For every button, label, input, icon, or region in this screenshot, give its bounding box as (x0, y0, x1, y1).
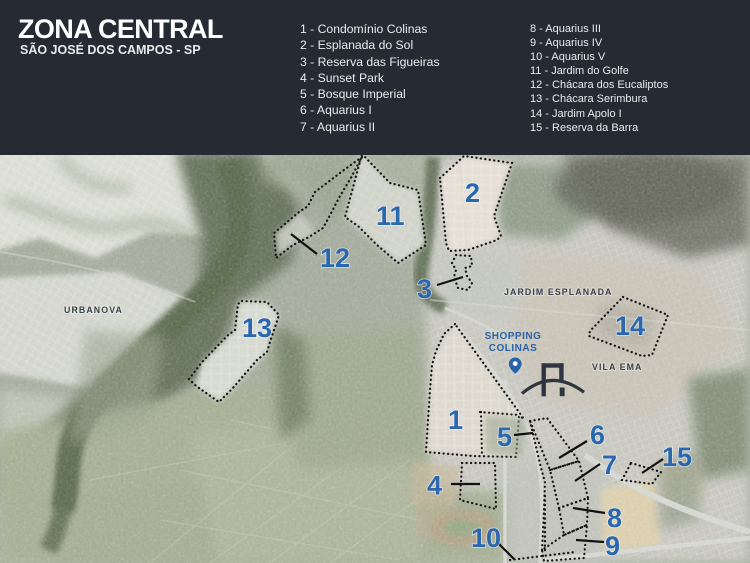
svg-text:4: 4 (427, 471, 442, 501)
svg-text:COLINAS: COLINAS (489, 343, 538, 354)
svg-text:JARDIM ESPLANADA: JARDIM ESPLANADA (504, 287, 613, 297)
svg-text:12: 12 (320, 243, 350, 273)
svg-text:7: 7 (602, 450, 617, 480)
svg-text:15: 15 (662, 442, 692, 472)
svg-text:11: 11 (376, 201, 405, 231)
svg-text:9: 9 (605, 531, 620, 561)
svg-text:2: 2 (465, 178, 480, 208)
svg-text:3: 3 (417, 274, 432, 304)
svg-text:URBANOVA: URBANOVA (64, 305, 123, 315)
svg-text:13: 13 (242, 313, 272, 343)
svg-text:14: 14 (615, 311, 645, 341)
svg-text:SHOPPING: SHOPPING (485, 331, 542, 342)
svg-text:6: 6 (590, 420, 605, 450)
svg-text:5: 5 (497, 422, 512, 452)
svg-text:1: 1 (448, 405, 463, 435)
svg-text:10: 10 (471, 523, 501, 553)
svg-text:VILA EMA: VILA EMA (592, 362, 643, 372)
svg-text:8: 8 (607, 503, 622, 533)
